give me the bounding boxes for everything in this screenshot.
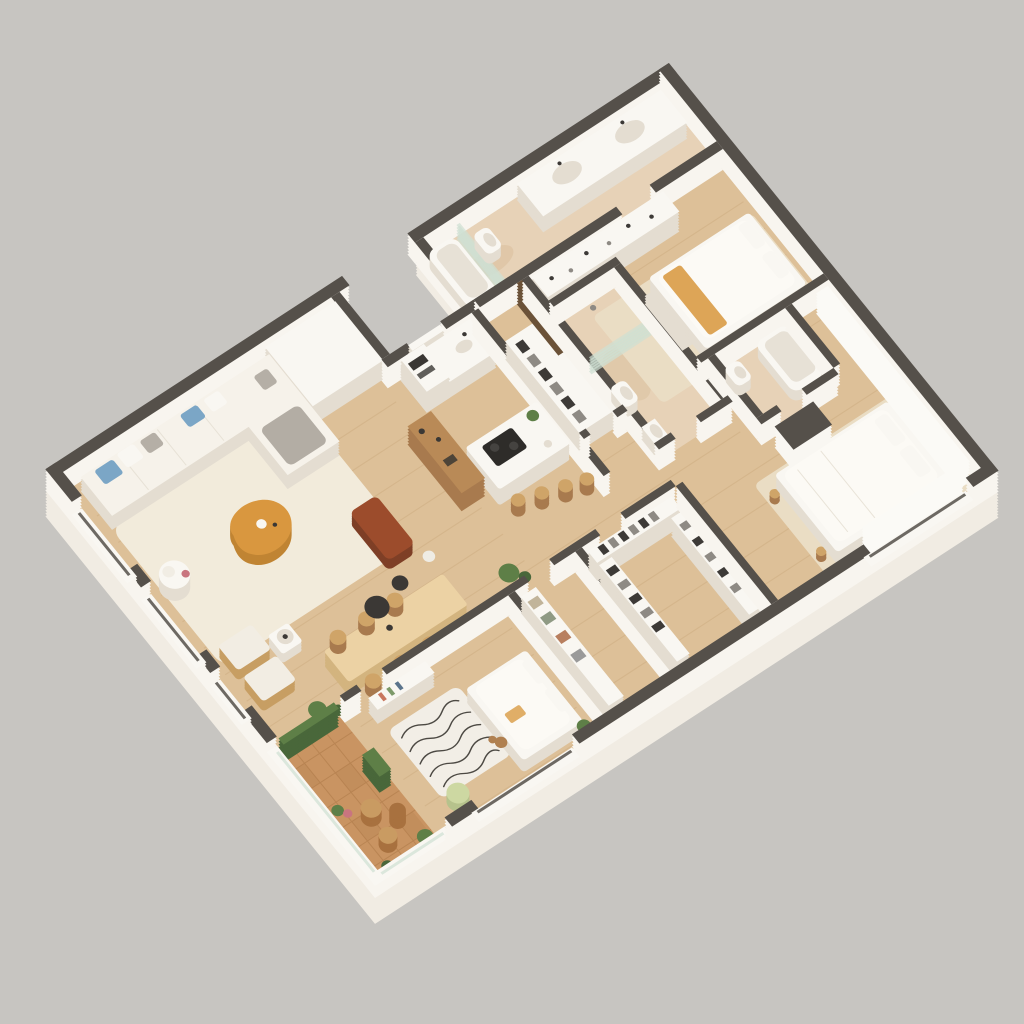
floor-plan-stage xyxy=(0,0,1024,1024)
floor-plan-render xyxy=(0,0,1024,1024)
